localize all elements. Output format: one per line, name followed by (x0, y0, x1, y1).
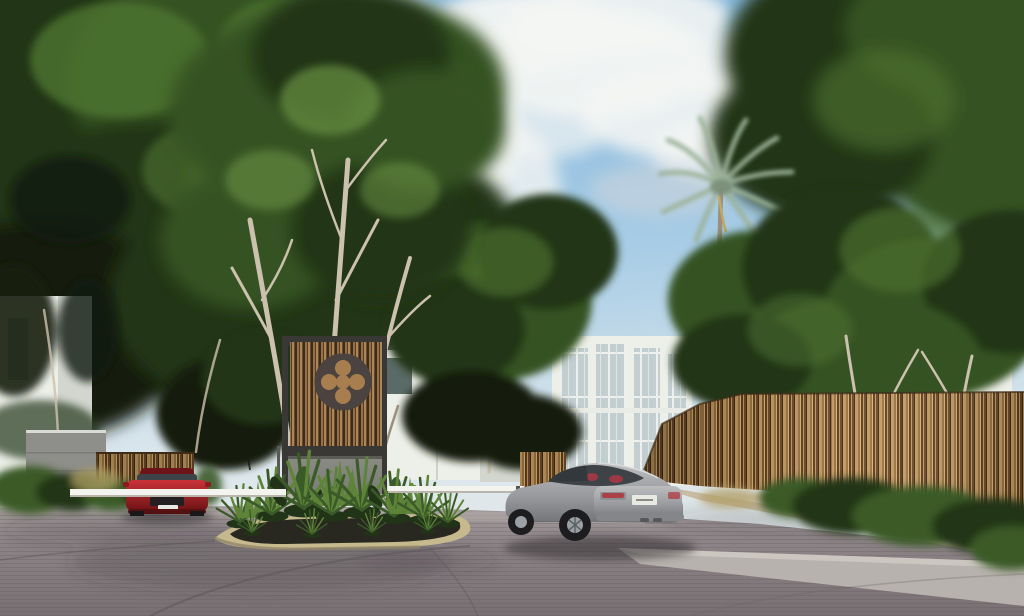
render-canvas: Gated residential community entrance - e… (0, 0, 1024, 616)
scene-rendering: Gated residential community entrance - e… (0, 0, 1024, 616)
tail-light (602, 493, 624, 498)
gate-barrier-left (70, 489, 286, 497)
emblem-medallion (317, 356, 369, 408)
tail-light-right (668, 492, 680, 499)
